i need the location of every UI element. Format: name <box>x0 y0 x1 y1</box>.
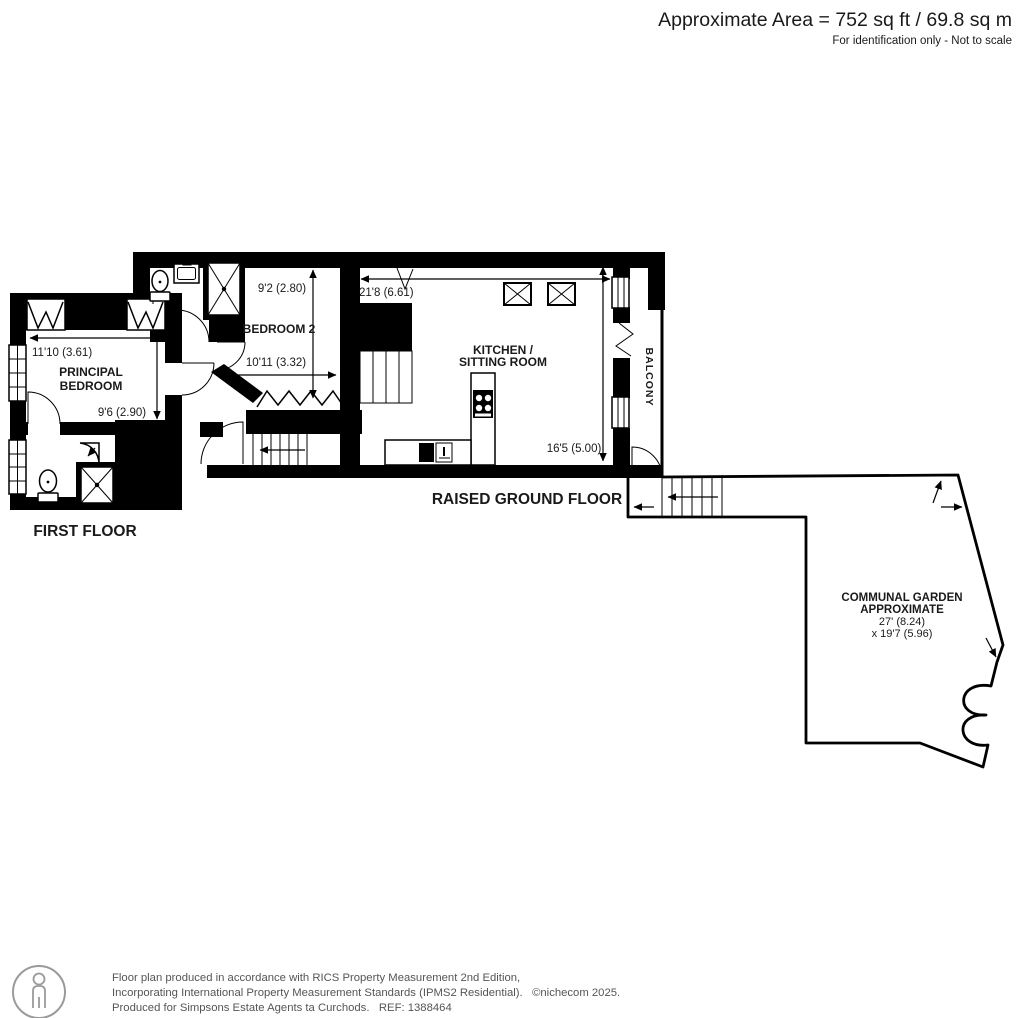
wall-bedroom-bottom-left <box>10 422 28 435</box>
floor-label-raised-ground-floor: RAISED GROUND FLOOR <box>432 491 622 508</box>
dimension-label: 16'5 (5.00) <box>547 443 602 455</box>
dimension-label: 9'6 (2.90) <box>98 407 146 419</box>
dimension-label: 9'2 (2.80) <box>258 283 306 295</box>
wall-kitchen-right-b <box>613 307 630 323</box>
window-icon <box>612 397 629 428</box>
shower-icon <box>203 258 245 320</box>
dimension-label: 11'10 (3.61) <box>32 347 92 359</box>
garden-label: COMMUNAL GARDEN <box>841 592 962 604</box>
wall-bottom-main <box>207 465 662 478</box>
wall-bedroom-right-lower <box>165 395 182 423</box>
room-label-principal-bedroom: PRINCIPAL <box>59 365 123 379</box>
staircase <box>253 434 307 465</box>
kitchen-island <box>471 373 495 465</box>
svg-text:SITTING ROOM: SITTING ROOM <box>459 355 547 369</box>
person-icon <box>13 966 65 1018</box>
svg-text:BEDROOM: BEDROOM <box>60 379 123 393</box>
dimension-label: 21'8 (6.61) <box>359 287 414 299</box>
door-arc <box>28 392 60 424</box>
skylight-icon <box>548 283 575 305</box>
svg-text:APPROXIMATE: APPROXIMATE <box>860 604 944 616</box>
wall-bathroom-bottom-right <box>209 318 245 342</box>
room-label-balcony: BALCONY <box>643 348 655 407</box>
toilet-icon <box>150 271 170 305</box>
wall-connector-left <box>133 268 150 295</box>
direction-arrow <box>933 481 941 503</box>
wall-l-block <box>115 420 182 510</box>
wall-top-right-block <box>648 252 665 310</box>
direction-arrow <box>986 638 996 657</box>
floor-label-first-floor: FIRST FLOOR <box>33 523 136 540</box>
toilet-icon <box>38 470 58 505</box>
corner-sink-icon <box>80 443 99 464</box>
shower-icon <box>76 462 118 508</box>
area-label: Approximate Area = 752 sq ft / 69.8 sq m <box>658 9 1012 31</box>
wardrobe-icon <box>127 299 165 330</box>
staircase <box>360 351 412 403</box>
communal-garden: COMMUNAL GARDEN APPROXIMATE 27' (8.24) x… <box>628 475 1003 767</box>
wall-divider-vertical <box>340 268 360 465</box>
window-icon <box>9 440 26 494</box>
footer-line: Produced for Simpsons Estate Agents ta C… <box>112 1002 452 1014</box>
floorplan-page: Approximate Area = 752 sq ft / 69.8 sq m… <box>0 0 1024 1018</box>
dimension-label: x 19'7 (5.96) <box>872 628 933 640</box>
footer-line: Floor plan produced in accordance with R… <box>112 972 520 984</box>
staircase <box>634 478 722 516</box>
wall-divider-mass <box>357 303 412 351</box>
footer-line: Incorporating International Property Mea… <box>112 987 620 999</box>
wall-kitchen-right-d <box>613 428 630 478</box>
footer: Floor plan produced in accordance with R… <box>13 966 620 1018</box>
dimension-label: 10'11 (3.32) <box>246 357 306 369</box>
dimension-label: 27' (8.24) <box>879 616 925 628</box>
door-arc <box>182 363 214 395</box>
wall-kitchen-right-c <box>613 358 630 398</box>
folding-door-icon <box>616 323 633 356</box>
kitchen-counter <box>385 440 471 465</box>
skylight-icon <box>504 283 531 305</box>
header: Approximate Area = 752 sq ft / 69.8 sq m… <box>658 9 1012 47</box>
wall-bathroom-bottom-left <box>150 330 177 342</box>
hob-icon <box>473 390 493 418</box>
window-icon <box>612 277 629 308</box>
disclaimer-label: For identification only - Not to scale <box>832 35 1012 47</box>
wardrobe-icon <box>257 391 344 407</box>
window-icon <box>9 345 26 401</box>
garden-outline <box>628 475 1003 767</box>
room-label-bedroom2: BEDROOM 2 <box>243 322 316 336</box>
wardrobe-icon <box>27 299 65 330</box>
